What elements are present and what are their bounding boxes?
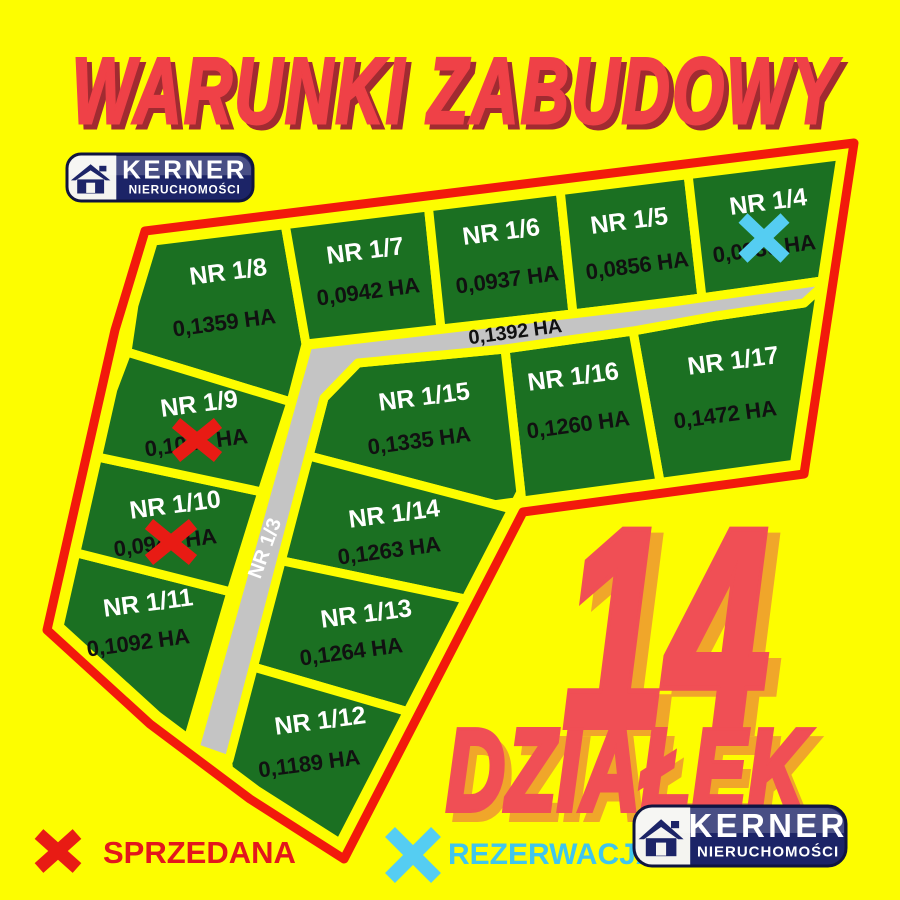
svg-text:REZERWACJA: REZERWACJA [448,838,657,871]
svg-text:NIERUCHOMOŚCI: NIERUCHOMOŚCI [697,842,839,860]
svg-text:KERNER: KERNER [689,807,848,844]
svg-text:KERNER: KERNER [122,156,247,184]
svg-text:NIERUCHOMOŚCI: NIERUCHOMOŚCI [129,183,241,197]
svg-text:WARUNKI ZABUDOWY: WARUNKI ZABUDOWY [72,39,842,144]
svg-text:SPRZEDANA: SPRZEDANA [103,835,296,870]
